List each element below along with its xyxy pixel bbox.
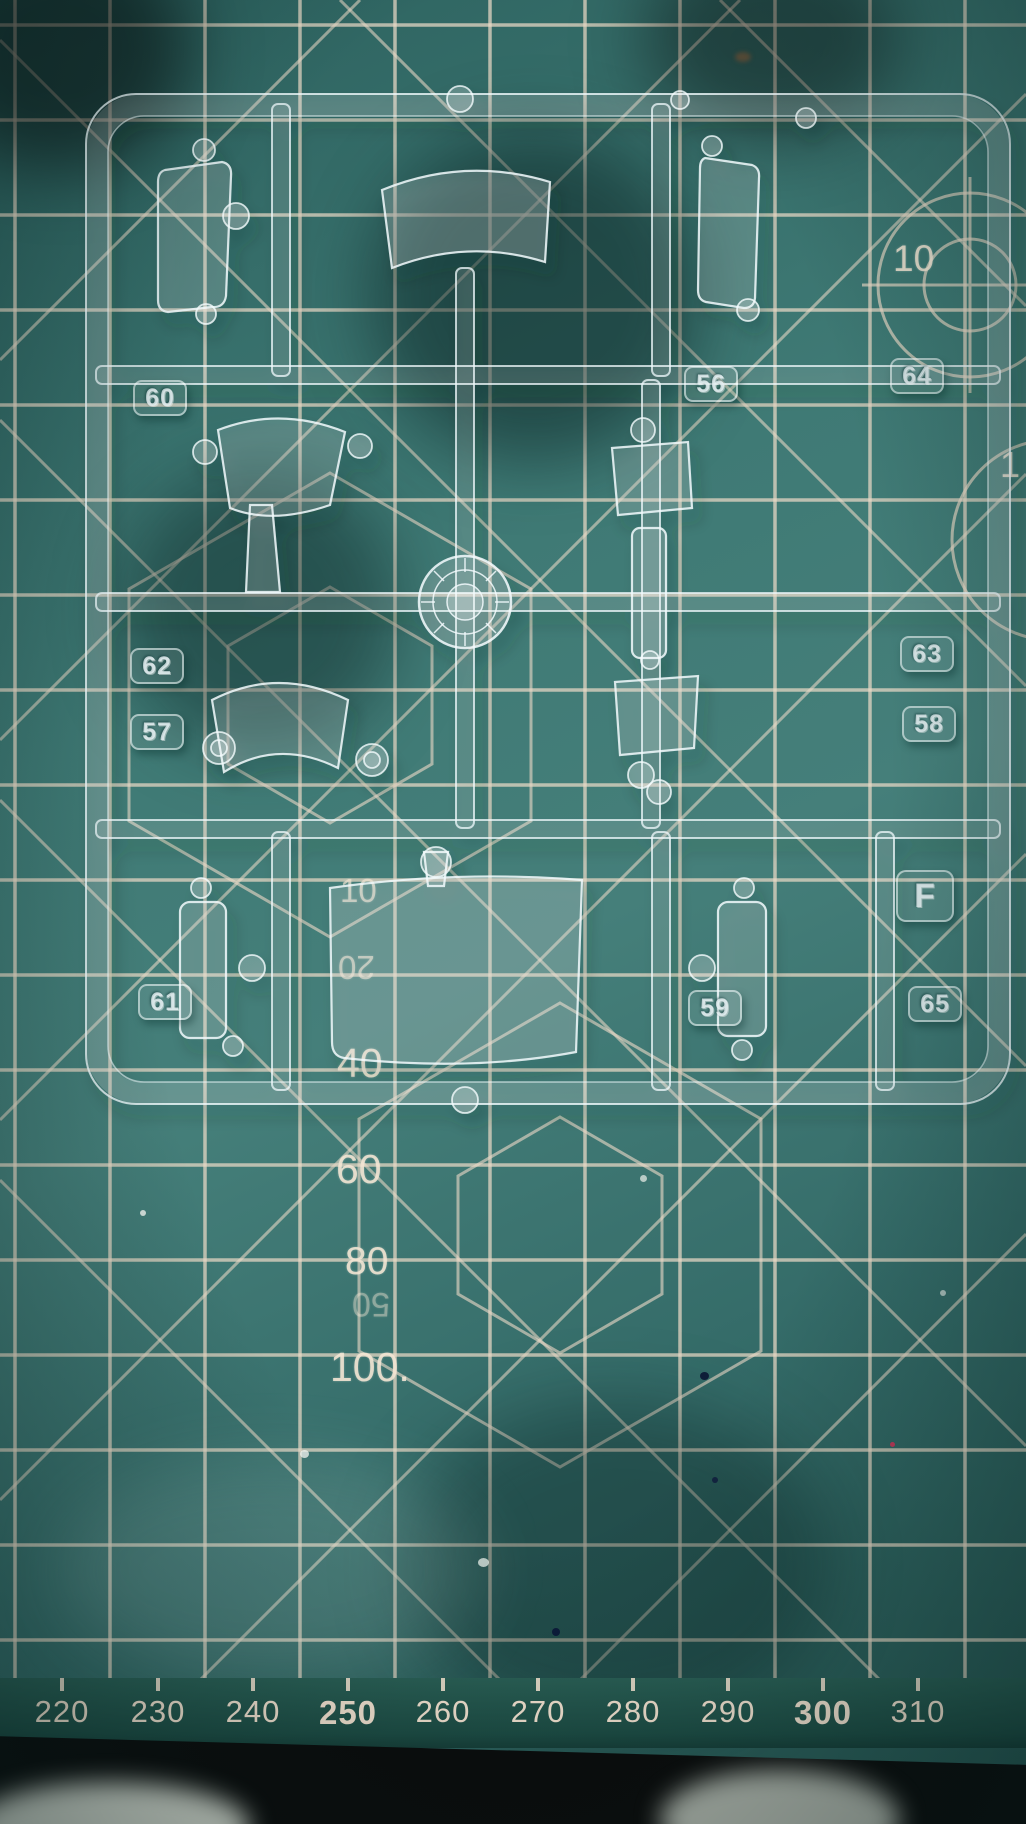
- blurred-object: [0, 1782, 250, 1824]
- ruler-tick: [631, 1678, 635, 1691]
- ruler-label: 280: [591, 1694, 675, 1730]
- mat-ruler: 220 230 240 250 260 270 280 290 300 310: [0, 1678, 1026, 1748]
- part-windscreen-bottom: [330, 876, 582, 1063]
- ruler-tick: [536, 1678, 540, 1691]
- ruler-label: 220: [20, 1694, 104, 1730]
- photo-cutting-mat-with-clear-sprue: 10 1 10 20 40 60 80 50 100.: [0, 0, 1026, 1824]
- part-pillar-strip: [632, 528, 666, 658]
- ruler-label: 240: [211, 1694, 295, 1730]
- part-visor-upper-left: [218, 418, 345, 515]
- part-visor-stalk: [246, 505, 280, 592]
- ruler-label: 230: [116, 1694, 200, 1730]
- part-number-tag-60: 60: [133, 380, 187, 416]
- clear-sprue: [0, 0, 1026, 1824]
- ruler-label: 300: [781, 1694, 865, 1732]
- part-number-tag-62: 62: [130, 648, 184, 684]
- part-windshield-top: [382, 171, 550, 268]
- ruler-label: 310: [876, 1694, 960, 1730]
- part-window-top-left: [158, 162, 231, 312]
- ruler-label: 260: [401, 1694, 485, 1730]
- ruler-label: 250: [306, 1694, 390, 1732]
- blurred-object: [660, 1770, 900, 1824]
- ruler-label: 270: [496, 1694, 580, 1730]
- sprue-center-hub: [419, 556, 511, 648]
- ruler-tick: [726, 1678, 730, 1691]
- part-pane-lower-right: [615, 676, 698, 755]
- ruler-tick: [251, 1678, 255, 1691]
- part-number-tag-61: 61: [138, 984, 192, 1020]
- ruler-label: 290: [686, 1694, 770, 1730]
- part-number-tag-56: 56: [684, 366, 738, 402]
- ruler-tick: [441, 1678, 445, 1691]
- ruler-tick: [60, 1678, 64, 1691]
- part-number-tag-63: 63: [900, 636, 954, 672]
- part-quarter-window-right: [612, 442, 692, 515]
- part-number-tag-64: 64: [890, 358, 944, 394]
- part-number-tag-57: 57: [130, 714, 184, 750]
- part-visor-lower-left: [212, 683, 348, 772]
- ruler-tick: [346, 1678, 350, 1691]
- ruler-tick: [916, 1678, 920, 1691]
- part-number-tag-59: 59: [688, 990, 742, 1026]
- ruler-tick: [156, 1678, 160, 1691]
- part-window-top-right: [698, 158, 759, 308]
- part-number-tag-58: 58: [902, 706, 956, 742]
- runner-letter-tag-f: F: [896, 870, 954, 922]
- ruler-tick: [821, 1678, 825, 1691]
- part-number-tag-65: 65: [908, 986, 962, 1022]
